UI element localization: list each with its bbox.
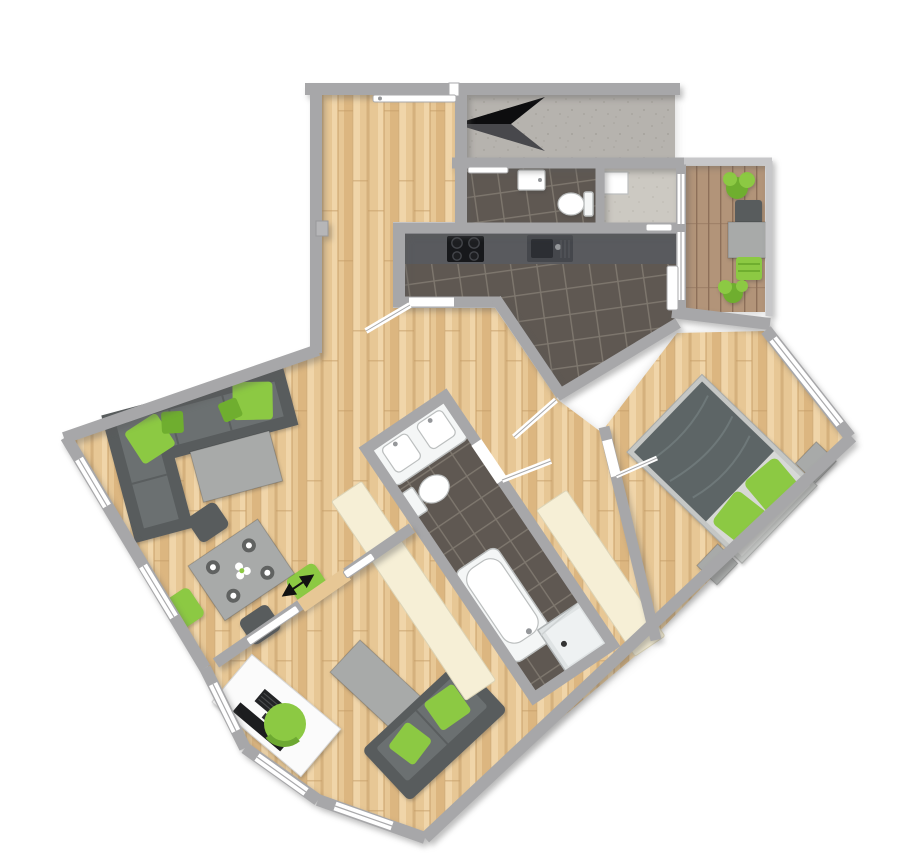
kitchen-unit	[399, 231, 676, 264]
balcony-door	[667, 266, 678, 310]
outdoor-chair	[735, 200, 762, 224]
radiator	[316, 221, 328, 236]
outdoor-table	[728, 222, 766, 258]
toilet-icon	[558, 192, 593, 216]
floor-plan-page	[0, 0, 920, 868]
storage-door	[646, 224, 672, 231]
storage-shelf	[604, 172, 628, 194]
wc-door	[468, 167, 508, 173]
wash-basin-icon	[518, 170, 545, 190]
desk-chair	[264, 703, 306, 745]
floor-plan-canvas	[0, 0, 920, 868]
sun-lounger	[736, 257, 762, 280]
kitchen-sink-icon	[527, 235, 573, 262]
cooktop-icon	[447, 236, 484, 262]
